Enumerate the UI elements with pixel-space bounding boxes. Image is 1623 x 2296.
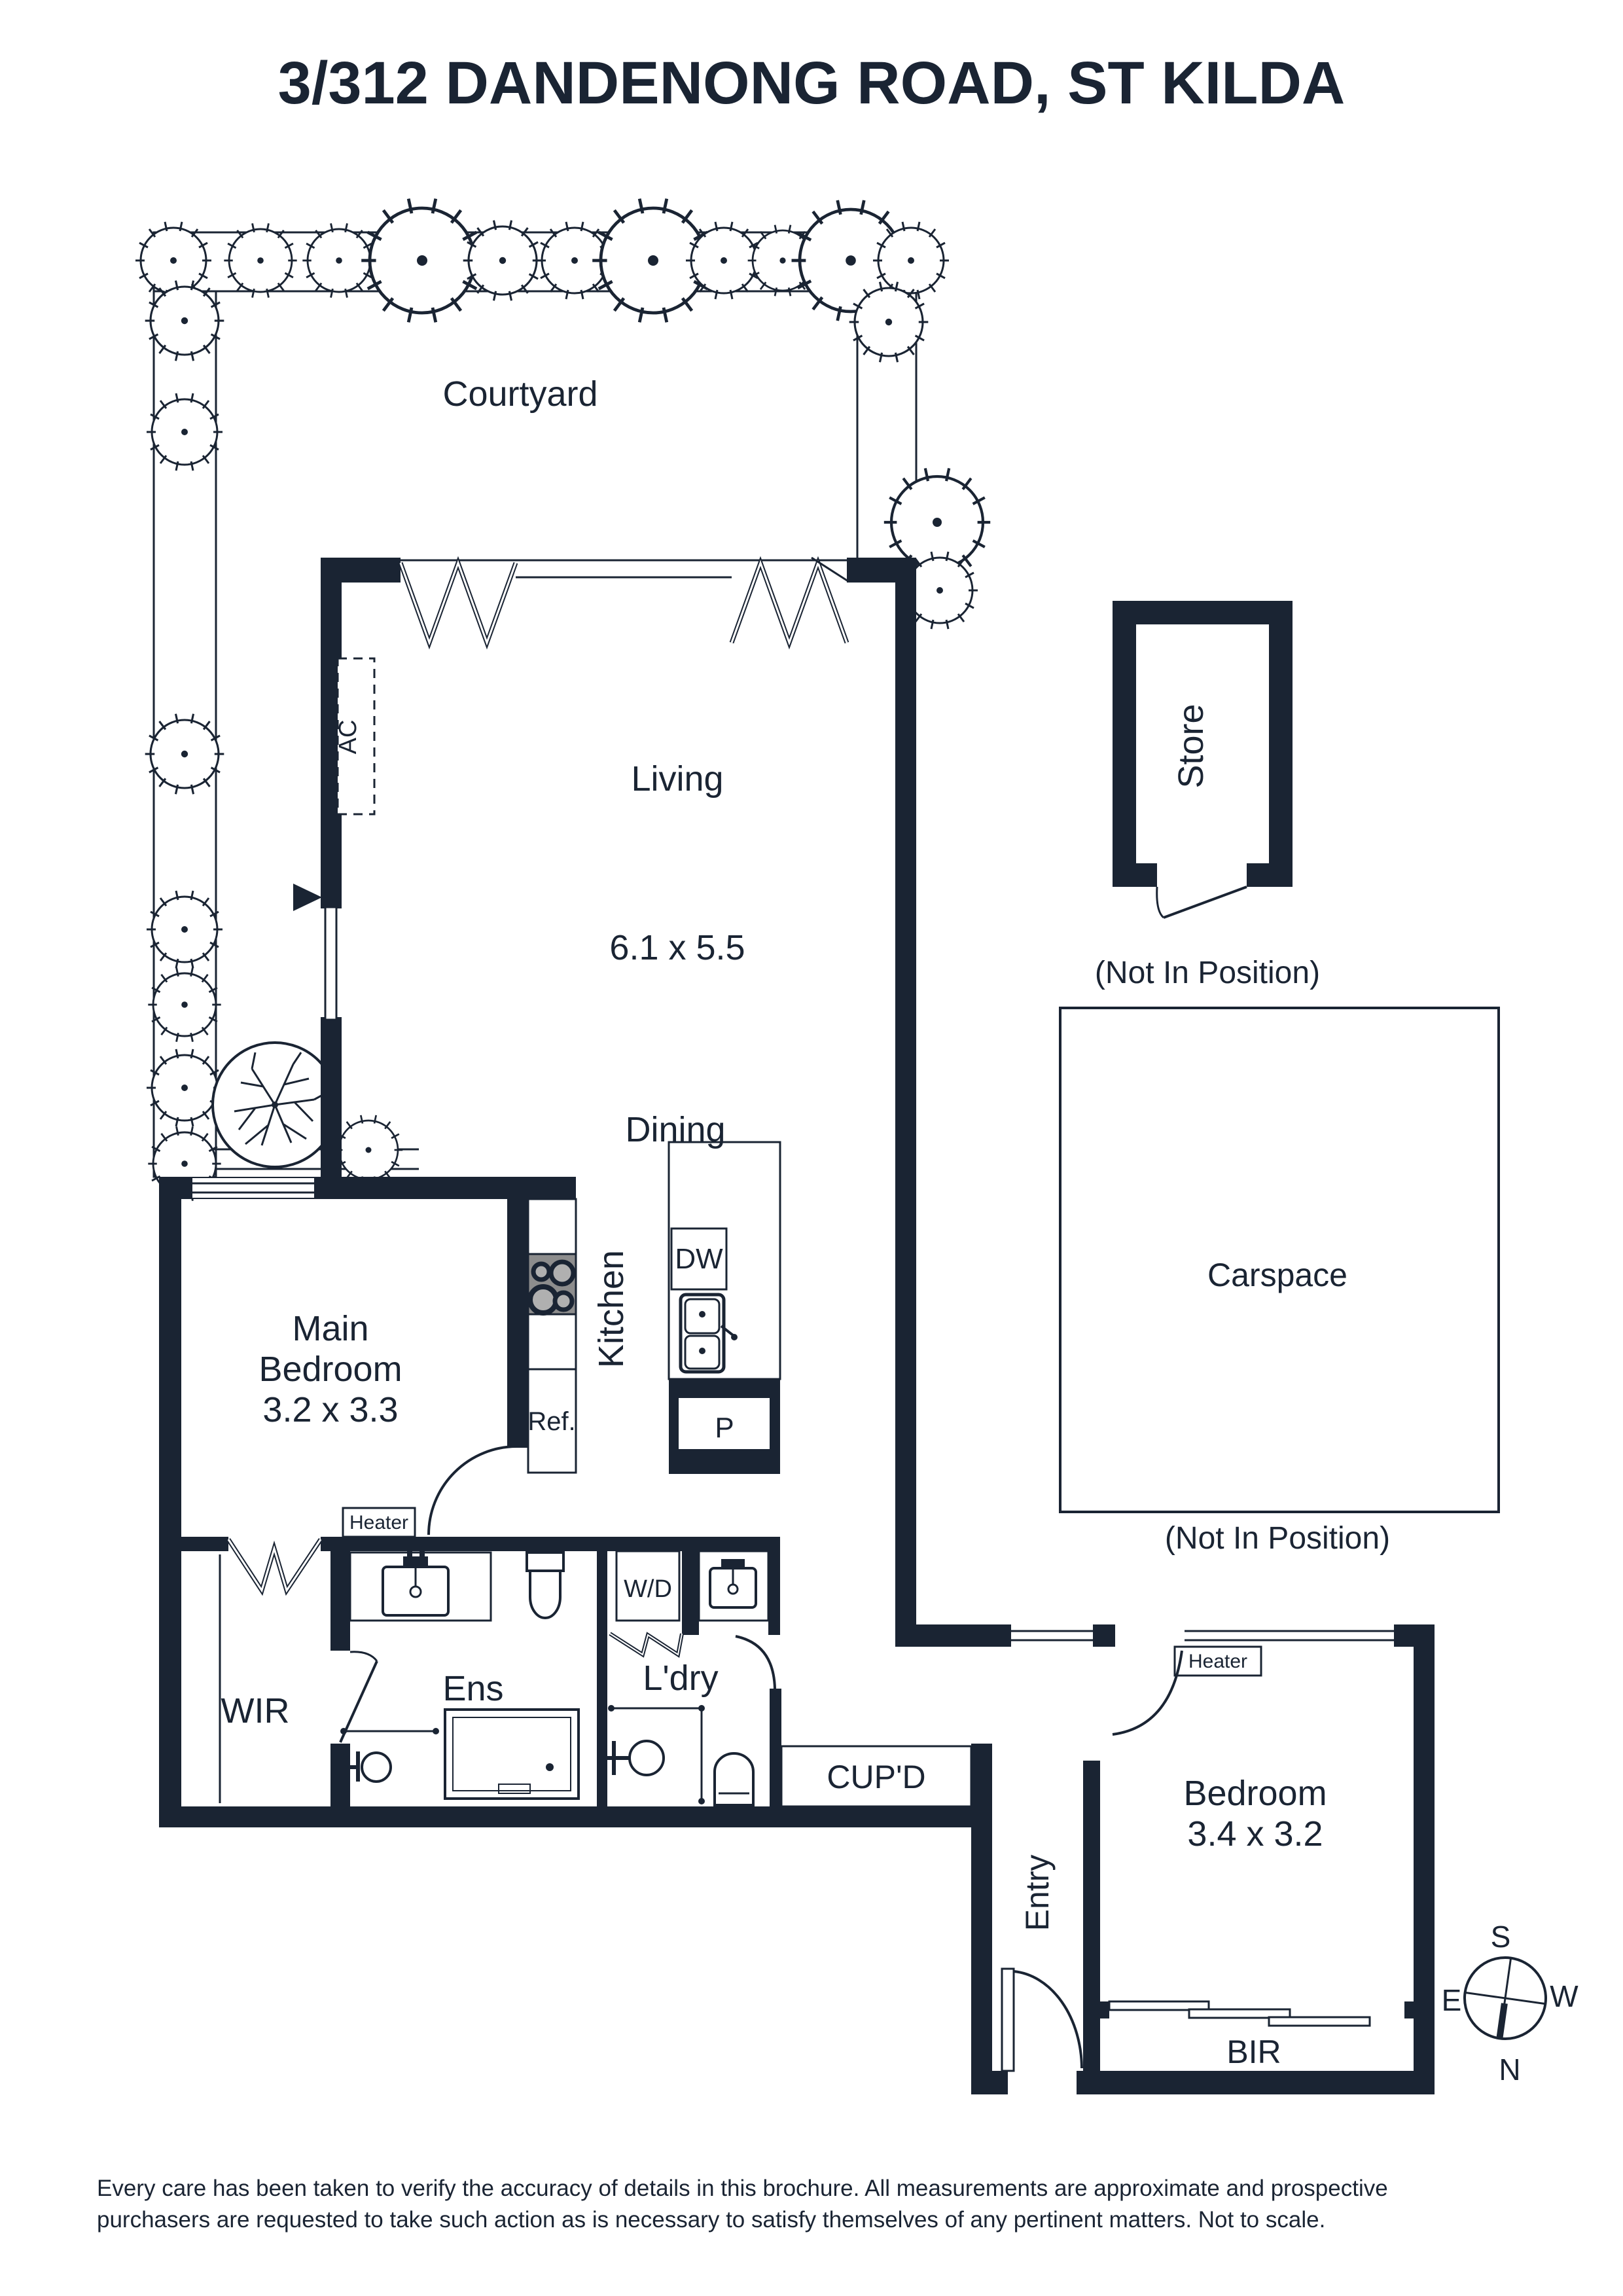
svg-text:Heater: Heater xyxy=(349,1512,408,1534)
floorplan-page: 3/312 DANDENONG ROAD, ST KILDA xyxy=(0,0,1623,2296)
ac-label: AC xyxy=(334,720,362,755)
deciduous-tree xyxy=(213,1043,337,1167)
store-note: (Not In Position) xyxy=(1095,956,1320,990)
cupboard: CUP'D xyxy=(781,1746,971,1806)
cooktop xyxy=(528,1254,576,1314)
store-label: Store xyxy=(1171,704,1211,788)
main-bedroom-dims: 3.2 x 3.3 xyxy=(262,1390,398,1429)
carspace-label: Carspace xyxy=(1207,1257,1347,1293)
washer-dryer-label: W/D xyxy=(624,1575,672,1603)
dishwasher-label: DW xyxy=(675,1243,723,1275)
main-bedroom-label-1: Main xyxy=(292,1309,368,1348)
main-bedroom-window xyxy=(192,1178,314,1198)
fridge-label: Ref. xyxy=(527,1407,575,1436)
bedroom2-heater: Heater xyxy=(1175,1647,1261,1676)
ensuite-label: Ens xyxy=(442,1669,503,1708)
courtyard-label: Courtyard xyxy=(442,374,597,414)
disclaimer-line-1: Every care has been taken to verify the … xyxy=(97,2176,1388,2201)
compass-n: N xyxy=(1499,2053,1520,2087)
living-label: Living xyxy=(631,759,723,798)
bedroom2-label: Bedroom xyxy=(1183,1774,1327,1813)
page-title: 3/312 DANDENONG ROAD, ST KILDA xyxy=(278,50,1346,117)
cupboard-label: CUP'D xyxy=(827,1759,925,1795)
bedroom2-dims: 3.4 x 3.2 xyxy=(1187,1814,1323,1854)
disclaimer-line-2: purchasers are requested to take such ac… xyxy=(97,2207,1325,2233)
compass-e: E xyxy=(1442,1983,1462,2017)
ac-unit: AC xyxy=(334,658,374,814)
store: Store xyxy=(1113,601,1293,918)
floorplan-drawing: 3/312 DANDENONG ROAD, ST KILDA xyxy=(0,0,1623,2296)
pantry: P xyxy=(669,1379,780,1474)
living-dims: 6.1 x 5.5 xyxy=(609,928,745,967)
pantry-label: P xyxy=(715,1412,734,1444)
compass-w: W xyxy=(1550,1979,1578,2013)
main-bedroom-label-2: Bedroom xyxy=(259,1350,402,1389)
svg-text:Heater: Heater xyxy=(1188,1651,1247,1672)
bir-label: BIR xyxy=(1226,2034,1281,2070)
compass-s: S xyxy=(1491,1920,1511,1954)
main-bedroom-heater: Heater xyxy=(343,1508,415,1537)
entry-label: Entry xyxy=(1019,1855,1056,1931)
carspace-note: (Not In Position) xyxy=(1165,1521,1390,1556)
wir-label: WIR xyxy=(221,1691,290,1731)
dining-label: Dining xyxy=(625,1110,725,1149)
bedroom2-windows xyxy=(1011,1626,1394,1645)
laundry-label: L'dry xyxy=(643,1659,718,1698)
kitchen-label: Kitchen xyxy=(592,1250,631,1368)
